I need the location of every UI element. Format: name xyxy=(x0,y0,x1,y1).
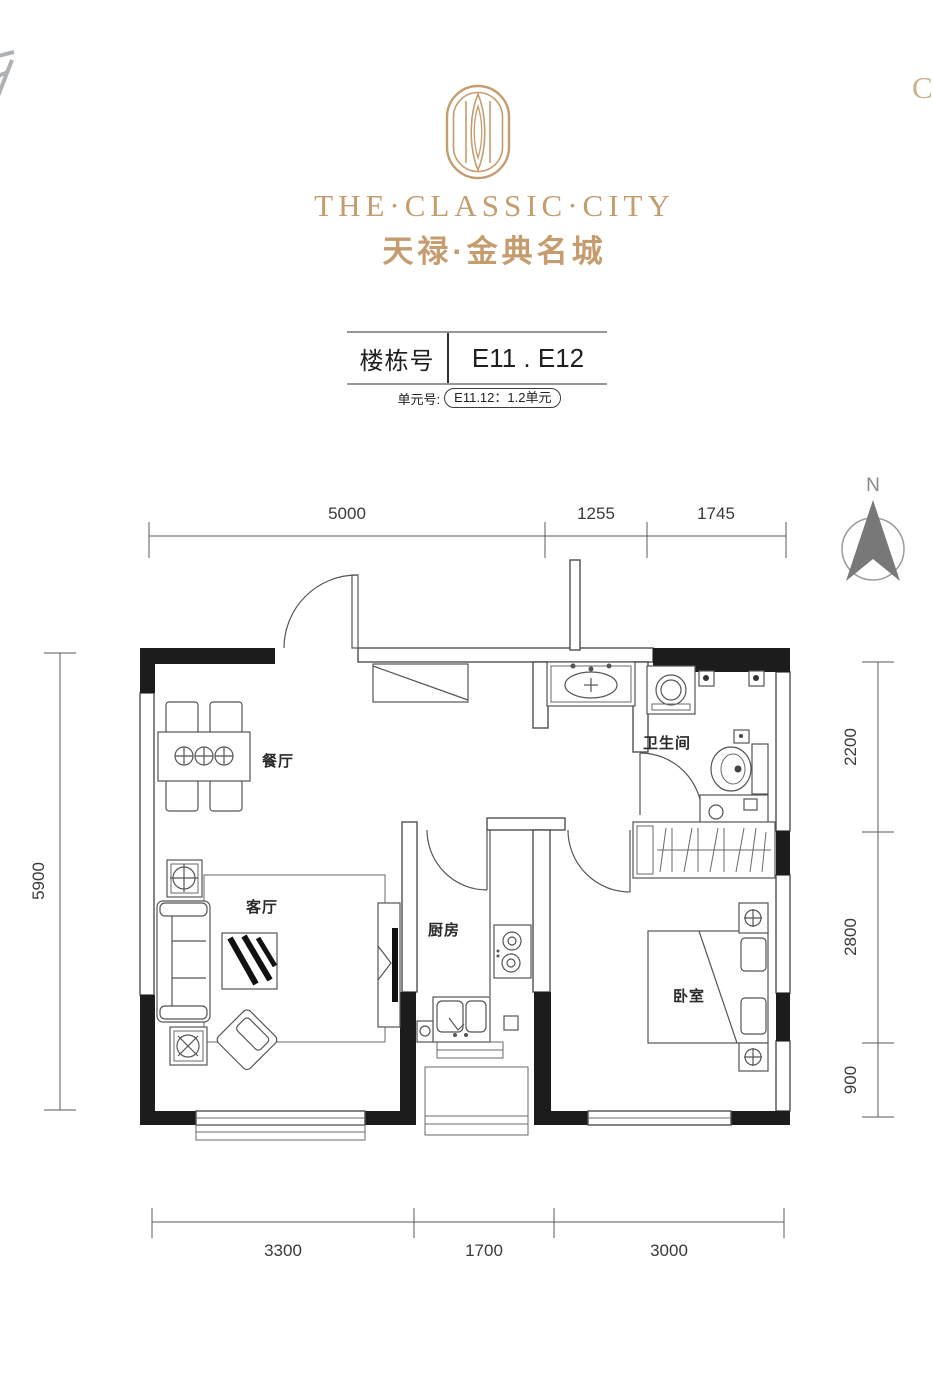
living-room-window xyxy=(196,1111,365,1140)
dim-right-3: 900 xyxy=(841,1066,860,1094)
dim-right-2: 2800 xyxy=(841,918,860,956)
wardrobe xyxy=(633,822,775,878)
shoe-cabinet xyxy=(373,664,468,702)
dimension-right: 2200 2800 900 xyxy=(841,662,894,1117)
washing-machine xyxy=(647,666,695,714)
nightstand-top xyxy=(739,903,768,933)
tv-cabinet xyxy=(378,903,400,1027)
bathroom-vanity xyxy=(547,662,635,706)
room-label-kitchen: 厨房 xyxy=(428,921,460,939)
dining-table xyxy=(158,702,250,811)
dimension-left: 5900 xyxy=(29,653,76,1110)
bed xyxy=(648,931,768,1043)
dim-bottom-3: 3000 xyxy=(650,1241,688,1260)
dim-bottom-2: 1700 xyxy=(465,1241,503,1260)
room-label-dining: 餐厅 xyxy=(262,752,294,770)
kitchen-door xyxy=(427,830,487,890)
compass-label: N xyxy=(866,475,880,496)
armchair xyxy=(215,1008,279,1072)
room-label-living: 客厅 xyxy=(245,898,278,916)
dim-top-2: 1255 xyxy=(577,504,615,523)
bedroom-door xyxy=(568,830,630,892)
room-label-bathroom: 卫生间 xyxy=(643,734,691,752)
dim-top-1: 5000 xyxy=(328,504,366,523)
plant-stand-bottom xyxy=(170,1027,207,1065)
bathroom-door xyxy=(640,753,702,815)
north-compass-icon: N xyxy=(842,475,904,581)
stove xyxy=(494,925,531,978)
ceiling-fixtures xyxy=(699,671,764,686)
dim-right-1: 2200 xyxy=(841,728,860,766)
floorplan-page: THE·CLASSIC·CITY 天禄·金典名城 楼栋号 E11 . E12 单… xyxy=(0,0,933,1400)
toilet xyxy=(711,730,768,794)
dim-top-3: 1745 xyxy=(697,504,735,523)
floorplan-drawing: 餐厅 客厅 厨房 卫生间 卧室 5000 1255 1745 3300 1700… xyxy=(0,0,933,1400)
rug xyxy=(222,933,277,989)
sofa xyxy=(157,901,210,1022)
bedroom-window xyxy=(588,1111,731,1125)
plant-stand-top xyxy=(167,860,202,897)
entry-door xyxy=(284,575,358,648)
windows xyxy=(196,1042,731,1140)
dimension-bottom: 3300 1700 3000 xyxy=(152,1208,784,1260)
kitchen-bay-window xyxy=(425,1042,528,1135)
room-label-bedroom: 卧室 xyxy=(673,987,705,1005)
dim-bottom-1: 3300 xyxy=(264,1241,302,1260)
dimension-top: 5000 1255 1745 xyxy=(149,504,786,558)
kitchen-sink xyxy=(417,997,518,1042)
nightstand-bottom xyxy=(739,1043,768,1071)
dim-left-1: 5900 xyxy=(29,862,48,900)
